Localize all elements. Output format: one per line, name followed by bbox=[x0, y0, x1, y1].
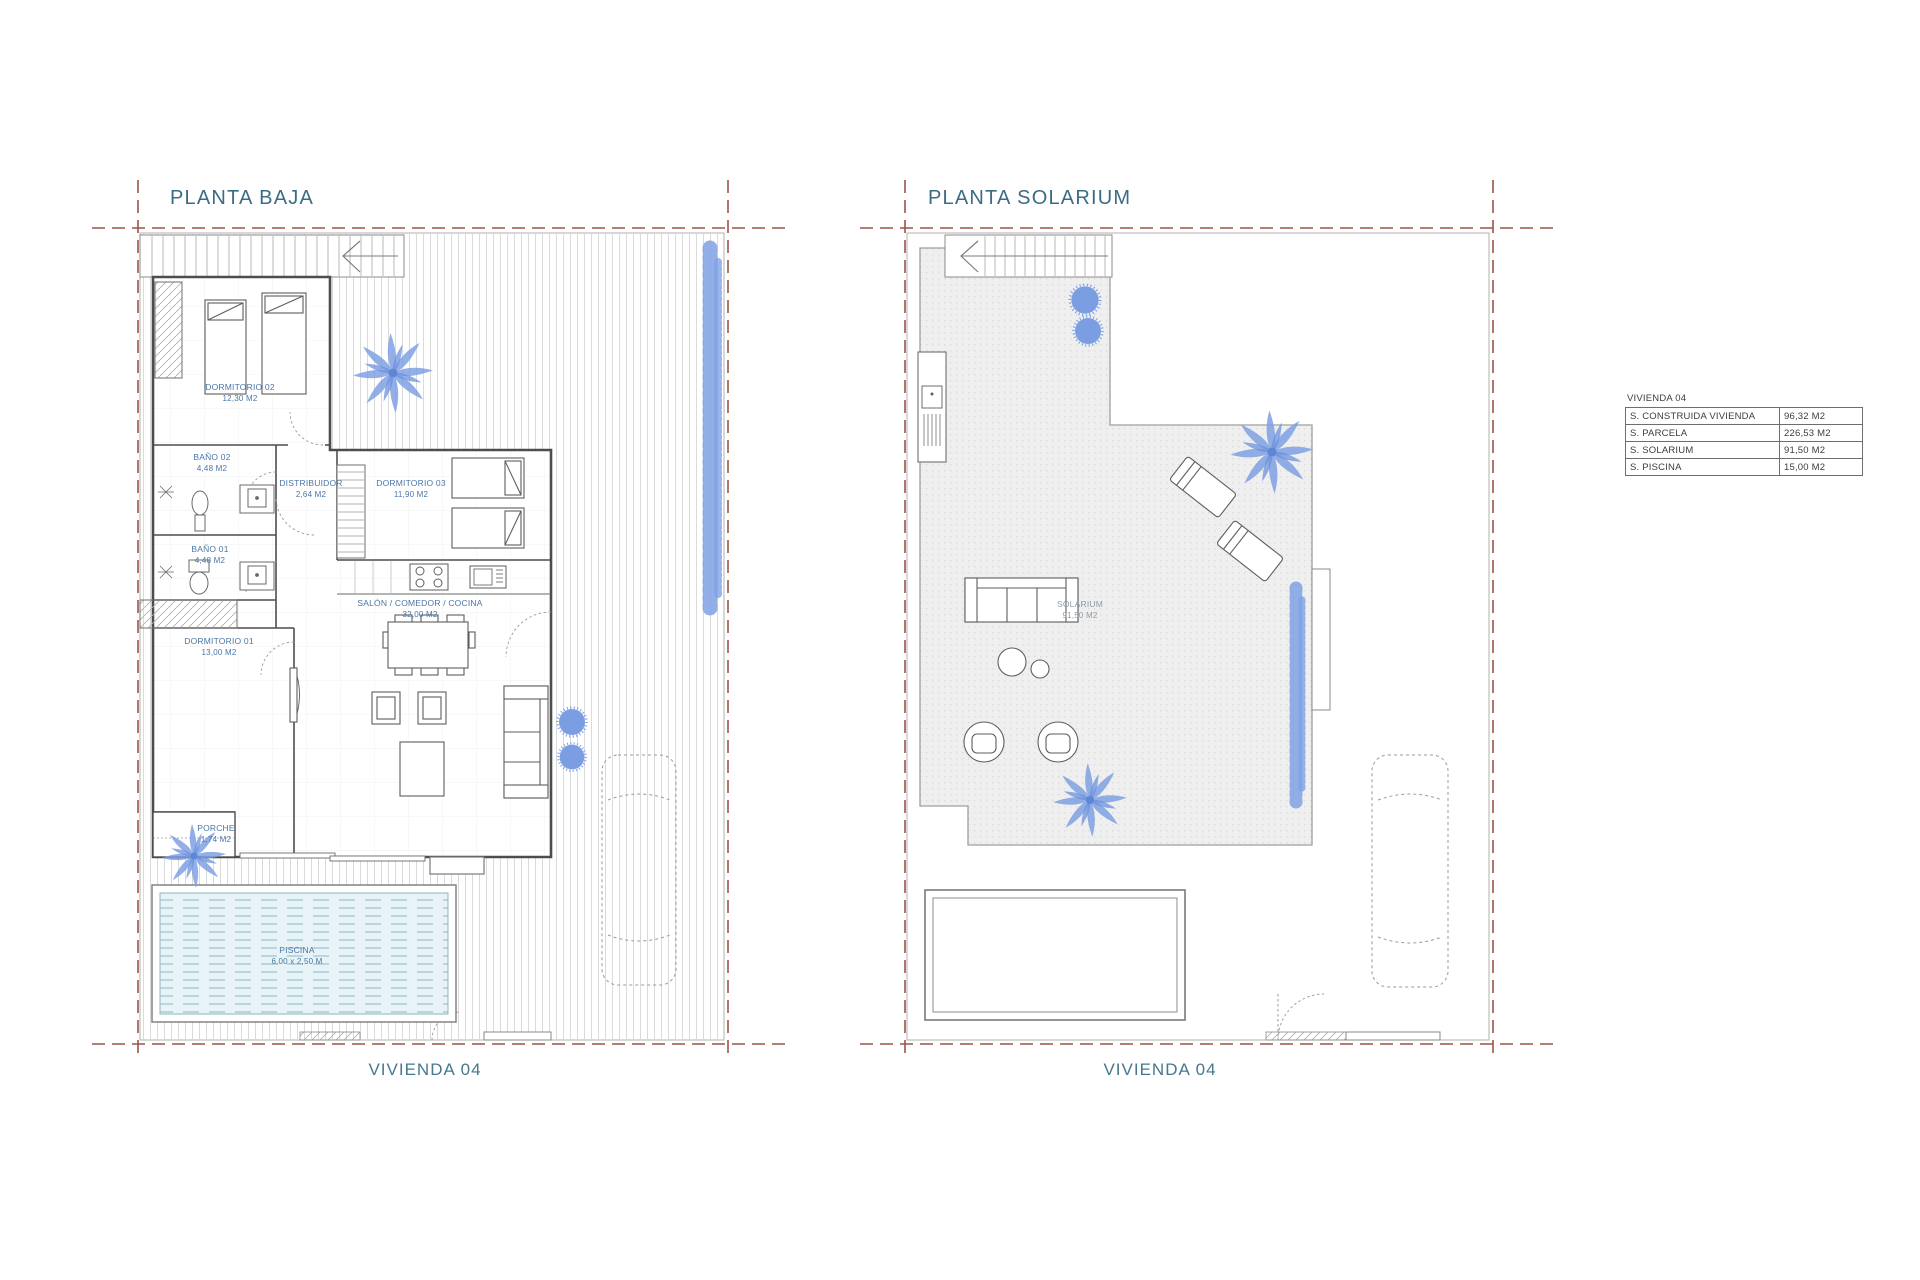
room-area-bano-02: 4,48 M2 bbox=[197, 464, 228, 473]
room-area-dormitorio-02: 12,30 M2 bbox=[223, 394, 258, 403]
hedge-strip bbox=[710, 248, 718, 612]
room-label-salon: SALÓN / COMEDOR / COCINA bbox=[357, 598, 482, 608]
summary-row-value: 91,50 M2 bbox=[1780, 442, 1863, 459]
room-label-bano-01: BAÑO 01 bbox=[191, 544, 228, 554]
summary-row-value: 96,32 M2 bbox=[1780, 408, 1863, 425]
table-row: S. PARCELA 226,53 M2 bbox=[1626, 425, 1863, 442]
tv-unit bbox=[290, 668, 297, 722]
table-row: S. PISCINA 15,00 M2 bbox=[1626, 459, 1863, 476]
pedestrian-gate bbox=[300, 1032, 360, 1040]
pool-outline bbox=[925, 890, 1185, 1020]
patio-step bbox=[430, 857, 484, 874]
planta-baja-title: PLANTA BAJA bbox=[170, 187, 314, 209]
planta-solarium-plan: PLANTA SOLARIUM bbox=[860, 180, 1556, 1079]
floor-plan-sheet: PLANTA BAJA bbox=[0, 0, 1920, 1280]
room-area-bano-01: 4,48 M2 bbox=[195, 556, 226, 565]
room-area-piscina: 6,00 x 2,50 M bbox=[271, 957, 322, 966]
perimeter-wall-segment bbox=[1312, 569, 1330, 710]
summary-row-label: S. CONSTRUIDA VIVIENDA bbox=[1626, 408, 1780, 425]
room-label-dormitorio-02: DORMITORIO 02 bbox=[205, 382, 275, 392]
driveway-gate bbox=[484, 1032, 551, 1040]
planta-solarium-title: PLANTA SOLARIUM bbox=[928, 187, 1131, 209]
solarium-stairs bbox=[945, 235, 1112, 277]
summary-title: VIVIENDA 04 bbox=[1627, 393, 1865, 404]
room-area-solarium: 91,50 M2 bbox=[1063, 611, 1098, 620]
summary-row-value: 226,53 M2 bbox=[1780, 425, 1863, 442]
planta-baja-footer: VIVIENDA 04 bbox=[368, 1060, 481, 1079]
room-label-distribuidor: DISTRIBUIDOR bbox=[279, 478, 342, 488]
plans-drawing: PLANTA BAJA bbox=[0, 0, 1920, 1280]
sink-icon bbox=[470, 566, 506, 588]
exterior-stairs bbox=[140, 235, 404, 277]
room-label-porche: PORCHE bbox=[197, 823, 235, 833]
wardrobe-dorm02 bbox=[155, 282, 182, 378]
room-area-salon: 32,00 M2 bbox=[403, 610, 438, 619]
planta-solarium-footer: VIVIENDA 04 bbox=[1103, 1060, 1216, 1079]
summary-row-label: S. PARCELA bbox=[1626, 425, 1780, 442]
room-area-dormitorio-03: 11,90 M2 bbox=[394, 490, 429, 499]
round-table bbox=[998, 648, 1026, 676]
surface-summary-table: VIVIENDA 04 S. CONSTRUIDA VIVIENDA 96,32… bbox=[1625, 393, 1865, 476]
room-label-piscina: PISCINA bbox=[279, 945, 315, 955]
room-area-porche: 1,74 M2 bbox=[201, 835, 232, 844]
hedge-strip bbox=[1296, 588, 1302, 802]
room-label-solarium: SOLARIUM bbox=[1057, 599, 1103, 609]
stove-icon bbox=[410, 564, 448, 590]
planta-baja-plan: PLANTA BAJA bbox=[92, 180, 792, 1079]
room-label-bano-02: BAÑO 02 bbox=[193, 452, 230, 462]
room-label-dormitorio-01: DORMITORIO 01 bbox=[184, 636, 254, 646]
summary-row-label: S. PISCINA bbox=[1626, 459, 1780, 476]
round-table bbox=[1031, 660, 1049, 678]
summary-row-value: 15,00 M2 bbox=[1780, 459, 1863, 476]
room-label-dormitorio-03: DORMITORIO 03 bbox=[376, 478, 446, 488]
solarium-kitchenette bbox=[918, 352, 946, 462]
room-area-distribuidor: 2,64 M2 bbox=[296, 490, 327, 499]
table-row: S. CONSTRUIDA VIVIENDA 96,32 M2 bbox=[1626, 408, 1863, 425]
closet-band bbox=[140, 600, 237, 628]
driveway-gate bbox=[1346, 1032, 1440, 1040]
summary-row-label: S. SOLARIUM bbox=[1626, 442, 1780, 459]
table-row: S. SOLARIUM 91,50 M2 bbox=[1626, 442, 1863, 459]
pedestrian-gate bbox=[1266, 1032, 1346, 1040]
room-area-dormitorio-01: 13,00 M2 bbox=[202, 648, 237, 657]
dining-table bbox=[383, 615, 475, 675]
